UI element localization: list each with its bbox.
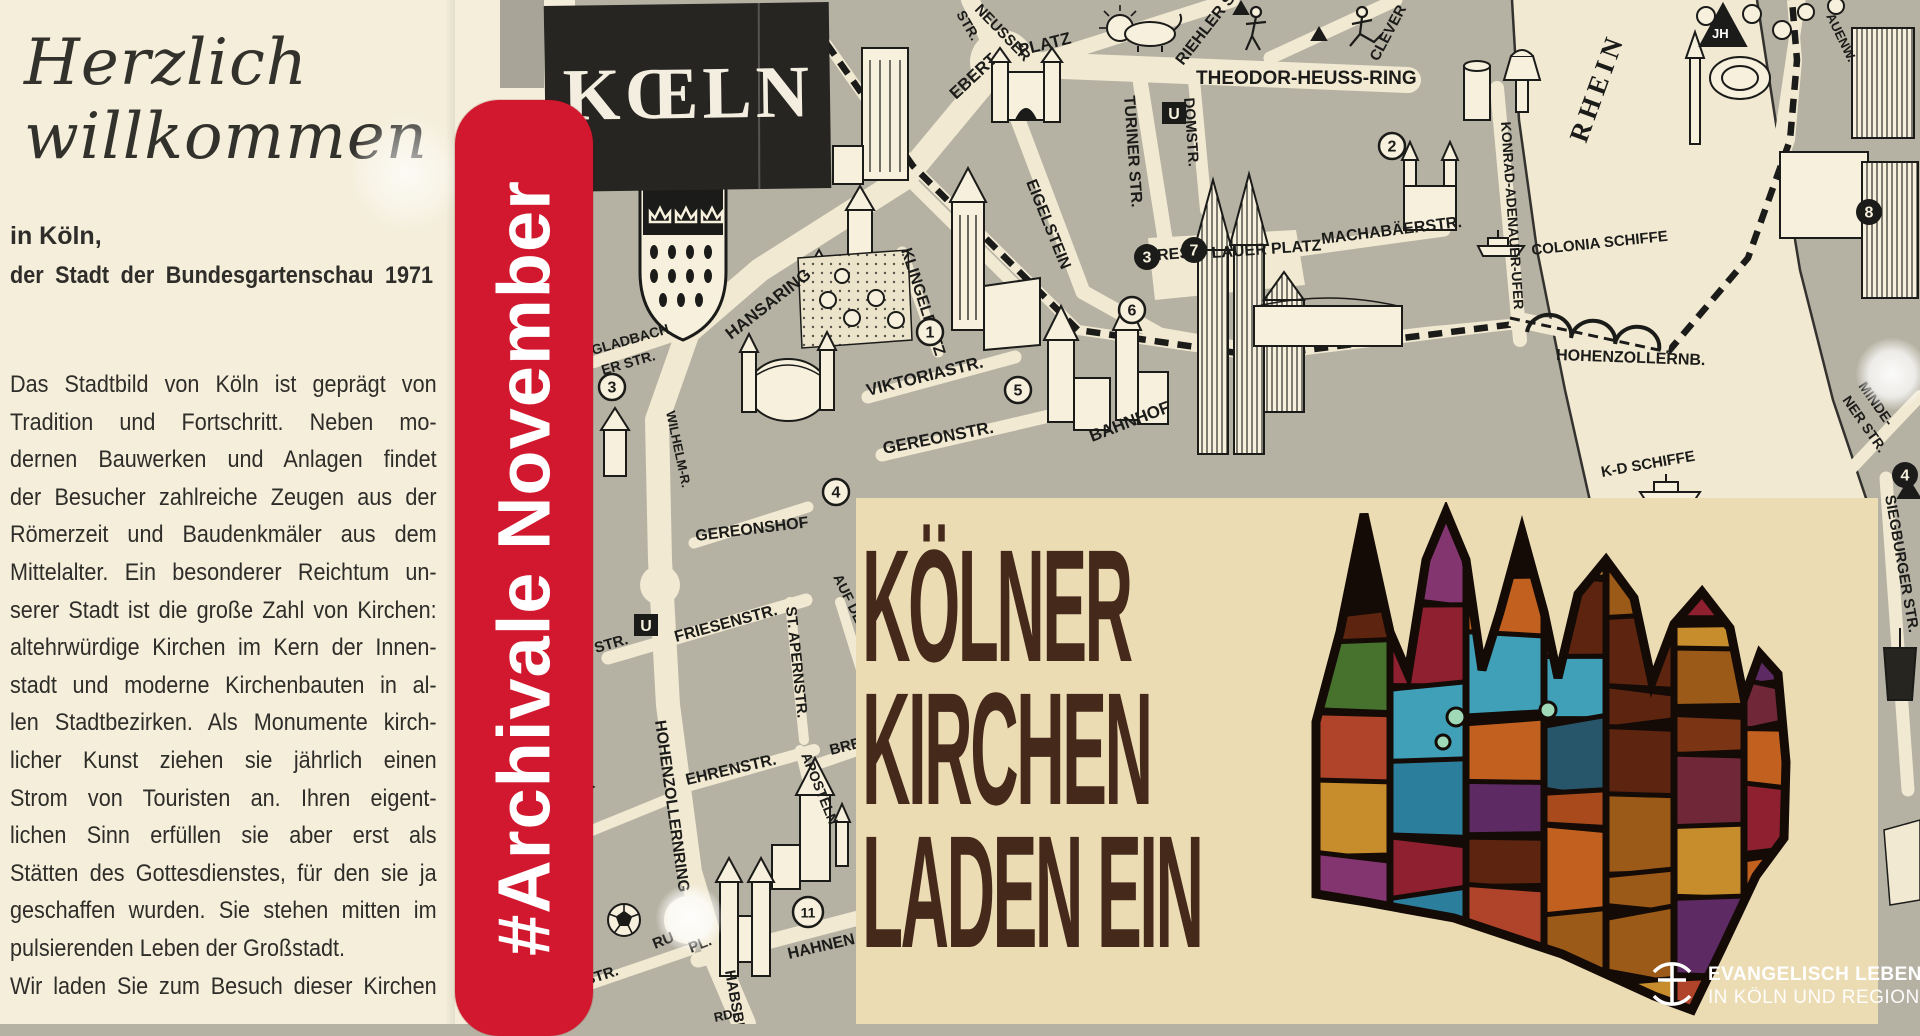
intro-body-line: Tradition und Fortschritt. Neben mo- [10,404,437,442]
svg-text:U: U [1168,106,1180,123]
intro-body-line: geschaffen wurden. Sie stehen mitten im [10,892,437,930]
svg-text:5: 5 [1014,383,1023,400]
welcome-subtitle-2: der Stadt der Bundesgartenschau 1971 [10,262,433,290]
hashtag-banner: #Archivale November [455,100,593,1036]
intro-body-line: dernen Bauwerken und Anlagen findet [10,441,437,479]
poi-marker-6: 6 [1119,297,1145,323]
koeln-logo-text: KŒLN [562,51,813,136]
intro-body-line: len Stadtbezirken. Als Monumente kirch- [10,704,437,742]
svg-text:6: 6 [1128,303,1137,320]
brand-line1: EVANGELISCH LEBEN [1708,964,1920,986]
intro-text-column: Herzlich willkommen in Köln, der Stadt d… [0,0,455,1024]
intro-body-text: Das Stadtbild von Köln ist geprägt vonTr… [10,366,437,1005]
announcement-panel: KÖLNER KIRCHEN LADEN EIN EVANGELISCH LEB… [856,498,1878,1024]
koeln-coat-of-arms [640,182,726,340]
intro-body-line: licher Kunst ziehen sie jährlich einen [10,742,437,780]
intro-body-line: Stätten des Gottesdienstes, für den sie … [10,855,437,893]
stained-glass-churches-illustration [1306,502,1798,1016]
svg-text:U: U [640,618,652,635]
poi-marker-5: 5 [1005,377,1031,403]
poi-marker-3: 3 [599,374,625,400]
intro-body-line: altehrwürdige Kirchen im Kern der Innen- [10,629,437,667]
ubahn-icon: U [1162,102,1186,124]
cross-circle-icon [1642,954,1702,1014]
intro-body-line: pulsierenden Leben der Großstadt. [10,930,437,968]
intro-body-line: Das Stadtbild von Köln ist geprägt von [10,366,437,404]
poi-marker-2: 2 [1379,133,1405,159]
poi-marker-4: 4 [823,479,849,505]
poi-marker-3: 3 [1134,244,1160,270]
svg-text:4: 4 [1901,468,1910,485]
poi-marker-11: 11 [793,897,823,927]
intro-body-line: Römerzeit und Baudenkmäler aus dem [10,516,437,554]
svg-text:7: 7 [1190,243,1199,260]
welcome-headline: Herzlich willkommen [24,26,428,174]
welcome-subtitle: in Köln, [10,222,102,251]
evangelisch-leben-logo: EVANGELISCH LEBEN IN KÖLN UND REGION [1642,950,1878,1020]
intro-body-line: serer Stadt ist die große Zahl von Kirch… [10,592,437,630]
poi-marker-1: 1 [917,319,943,345]
svg-text:2: 2 [1388,139,1397,156]
ubahn-icon: U [634,614,658,636]
svg-text:3: 3 [1143,250,1152,267]
hashtag-banner-label: #Archivale November [482,180,567,956]
intro-body-line: lichen Sinn erfüllen sie aber erst als [10,817,437,855]
intro-body-line: Strom von Touristen an. Ihren eigent- [10,780,437,818]
intro-body-line: stadt und moderne Kirchenbauten in al- [10,667,437,705]
poi-marker-7: 7 [1181,237,1207,263]
street-label: THEODOR-HEUSS-RING [1196,68,1417,89]
svg-text:1: 1 [926,325,935,342]
poi-marker-8: 8 [1856,199,1882,225]
svg-text:3: 3 [608,380,617,397]
welcome-headline-line1: Herzlich [24,26,428,100]
intro-body-line: der Besucher zahlreiche Zeugen aus der [10,479,437,517]
soccer-ball-icon [608,904,640,936]
street-label: JH [1712,26,1729,41]
intro-body-line: Wir laden Sie zum Besuch dieser Kirchen [10,968,437,1006]
poi-marker-4: 4 [1892,462,1918,488]
brand-line2: IN KÖLN UND REGION [1708,987,1920,1009]
svg-text:4: 4 [832,485,841,502]
svg-text:11: 11 [801,905,816,921]
panel-title-line3: LADEN EIN [862,812,1201,972]
svg-text:8: 8 [1865,205,1874,222]
intro-body-line: Mittelalter. Ein besonderer Reichtum un- [10,554,437,592]
welcome-headline-line2: willkommen [24,100,428,174]
